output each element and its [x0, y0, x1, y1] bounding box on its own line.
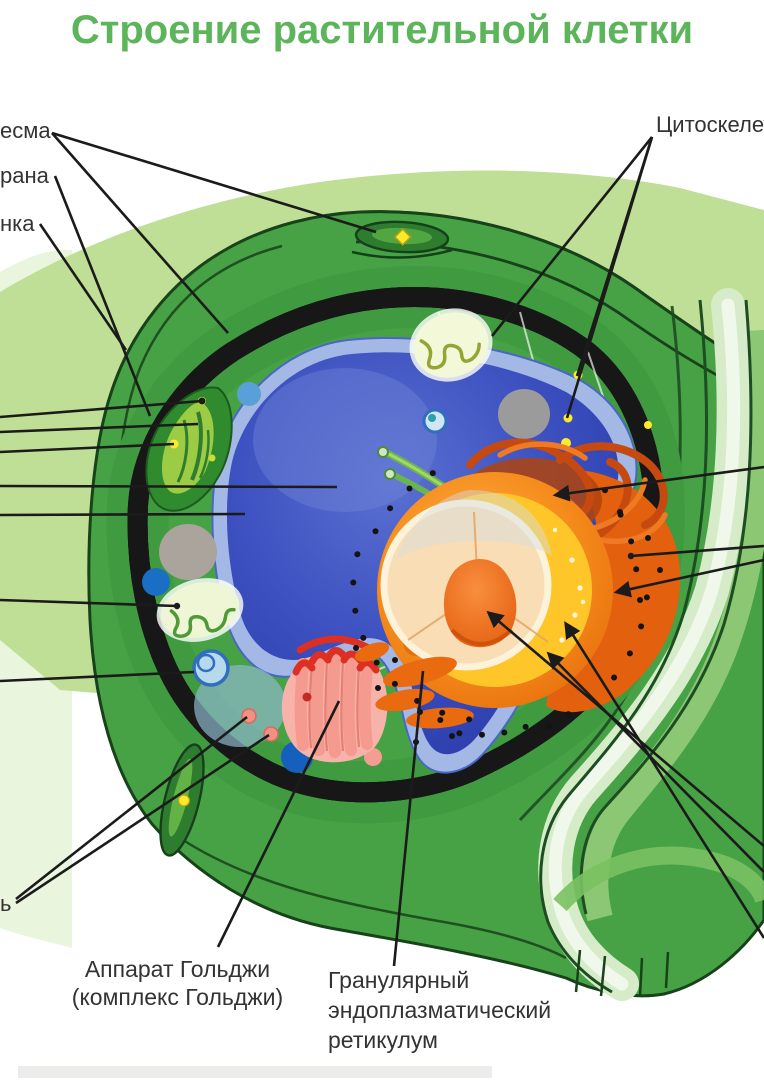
label-plasmodesma-fragment: есма: [0, 118, 48, 144]
diagram-title: Строение растительной клетки: [0, 8, 764, 53]
vesicle-dark-blue: [142, 568, 170, 596]
cell-illustration: [0, 0, 764, 1080]
gray-vesicle: [498, 389, 550, 439]
label-cytoskeleton: Цитоскелет: [656, 112, 764, 138]
label-wall-fragment: нка: [0, 211, 33, 237]
peroxisome-dot: [264, 727, 278, 741]
vesicle-ring-small: [424, 410, 446, 432]
plant-cell-diagram: Строение растительной клетки есма рана н…: [0, 0, 764, 1080]
bottom-gray-strip: [18, 1066, 492, 1078]
leucoplast-gray-blob: [159, 524, 217, 580]
vesicle-ringed: [194, 651, 228, 685]
label-vacuole-fragment: ь: [0, 891, 11, 917]
label-membrane-fragment: рана: [0, 163, 46, 189]
vesicle-blue: [237, 382, 261, 406]
label-granular-er: Гранулярный эндоплазматический ретикулум: [328, 966, 551, 1056]
label-golgi: Аппарат Гольджи (комплекс Гольджи): [55, 955, 300, 1011]
yellow-dot: [644, 421, 652, 429]
